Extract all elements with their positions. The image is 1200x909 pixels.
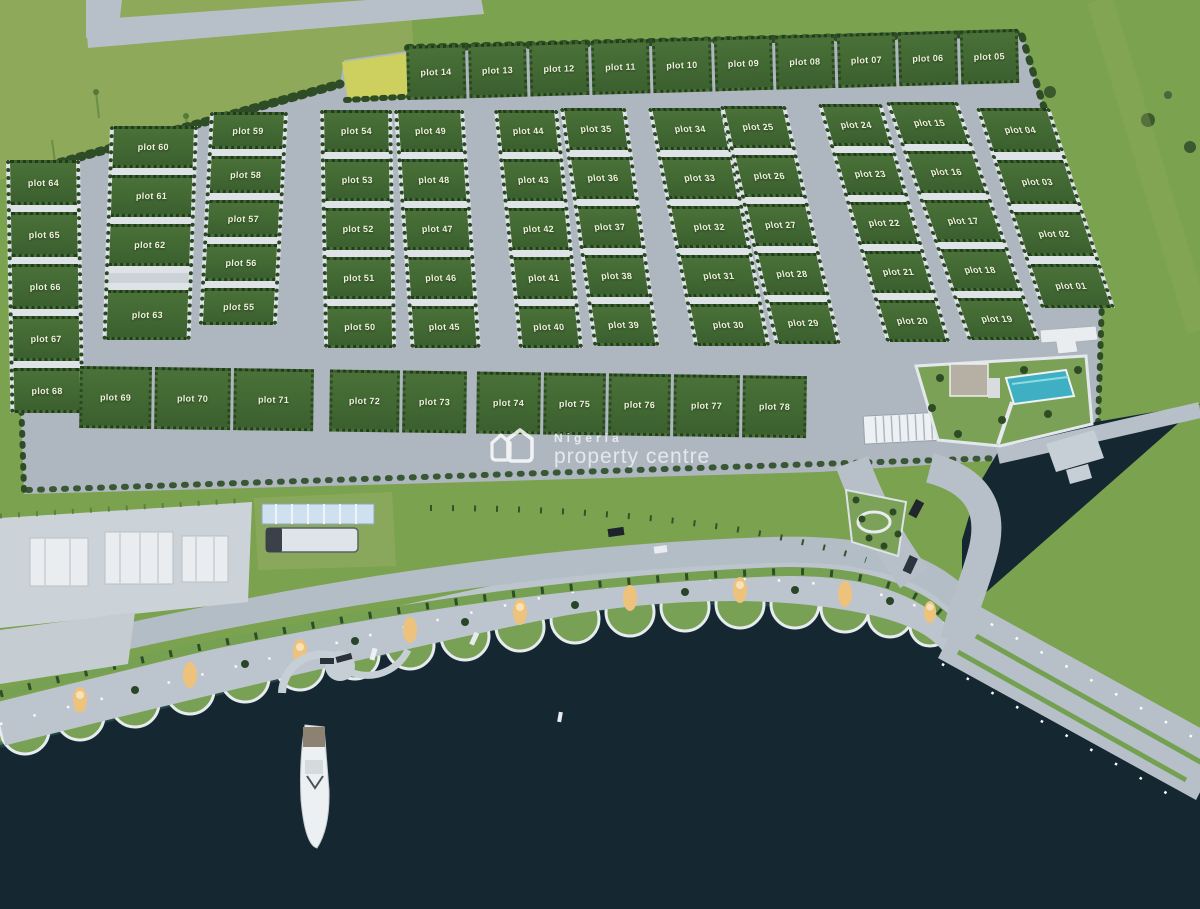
plot-cell: plot 12 (529, 41, 589, 97)
plot-cell: plot 01 (1031, 264, 1111, 308)
plot-cell: plot 09 (713, 36, 773, 92)
plot-cell: plot 45 (412, 306, 477, 348)
plot-cell: plot 51 (327, 257, 392, 299)
plot-cell: plot 43 (503, 159, 563, 201)
plot-cell: plot 59 (212, 112, 284, 149)
plot-cell: plot 70 (154, 367, 231, 430)
plot-cell: plot 65 (11, 212, 78, 257)
plot-cell: plot 62 (109, 224, 190, 266)
plot-cell: plot 25 (724, 106, 792, 148)
plot-cell: plot 06 (898, 31, 958, 87)
plot-cell: plot 32 (671, 206, 747, 248)
plot-cell: plot 15 (890, 102, 968, 144)
plot-cell: plot 20 (878, 300, 946, 342)
plot-cell: plot 61 (111, 175, 192, 217)
plot-cell: plot 60 (113, 126, 194, 168)
plot-cell: plot 14 (406, 44, 466, 100)
plot-cell: plot 38 (585, 255, 649, 297)
car (908, 499, 924, 518)
plot-column-64s: plot 64 plot 65 plot 66 plot 67 plot 68 (6, 160, 84, 413)
plot-cell: plot 75 (543, 372, 606, 435)
plot-cell: plot 71 (233, 368, 314, 431)
plot-cell: plot 26 (735, 155, 803, 197)
plot-cell: plot 35 (564, 108, 628, 150)
plot-cell: plot 42 (508, 208, 568, 250)
plot-cell: plot 56 (205, 244, 277, 281)
plot-column-50s: plot 54 plot 53 plot 52 plot 51 plot 50 (320, 110, 396, 348)
plot-cell: plot 69 (79, 366, 152, 429)
plot-cell: plot 08 (775, 34, 835, 90)
plot-cell: plot 05 (959, 29, 1019, 85)
plot-cell: plot 36 (571, 157, 635, 199)
plot-cell: plot 29 (769, 302, 837, 344)
plot-cell: plot 49 (398, 110, 463, 152)
plot-cell: plot 23 (836, 153, 904, 195)
plot-cell: plot 58 (210, 156, 282, 193)
plot-cell: plot 48 (401, 159, 466, 201)
plot-cell: plot 68 (14, 368, 81, 413)
plot-cell: plot 03 (997, 160, 1077, 204)
plot-column-55s: plot 59 plot 58 plot 57 plot 56 plot 55 (199, 112, 288, 325)
plot-cell: plot 46 (408, 257, 473, 299)
plot-cell: plot 19 (957, 298, 1035, 340)
plot-cell: plot 76 (608, 373, 671, 436)
plot-cell: plot 73 (402, 371, 467, 434)
utility-strip (109, 273, 189, 283)
car (608, 527, 625, 537)
plot-cell: plot 37 (578, 206, 642, 248)
plot-cell: plot 24 (822, 104, 890, 146)
solar-canopy (262, 504, 374, 524)
plot-cell: plot 67 (13, 316, 80, 361)
plot-cell: plot 53 (325, 159, 390, 201)
plot-cell: plot 54 (324, 110, 389, 152)
plot-cell: plot 55 (203, 288, 275, 325)
plot-cell: plot 30 (690, 304, 766, 346)
plot-cell: plot 41 (513, 257, 573, 299)
plot-cell: plot 34 (652, 108, 728, 150)
plot-cell: plot 17 (924, 200, 1002, 242)
plot-column-60s: plot 60 plot 61 plot 62 plot 63 (103, 126, 198, 340)
plot-cell: plot 72 (329, 369, 400, 432)
plot-cell: plot 28 (758, 253, 826, 295)
plot-cell: plot 74 (476, 372, 541, 435)
plot-cell: plot 44 (498, 110, 558, 152)
plot-cell: plot 21 (864, 251, 932, 293)
plot-cell: plot 66 (12, 264, 79, 309)
plot-cell: plot 50 (327, 306, 392, 348)
plot-cell: plot 64 (10, 160, 77, 205)
plot-cell: plot 16 (907, 151, 985, 193)
plot-cell: plot 22 (850, 202, 918, 244)
plot-cell: plot 04 (980, 108, 1060, 152)
plot-cell: plot 39 (592, 304, 656, 346)
plot-cell: plot 07 (836, 32, 896, 88)
plot-cell: plot 11 (590, 39, 650, 95)
plot-cell: plot 52 (326, 208, 391, 250)
truck-yard (254, 492, 396, 570)
plot-cell: plot 18 (941, 249, 1019, 291)
plot-cell: plot 31 (681, 255, 757, 297)
plot-cell: plot 33 (662, 157, 738, 199)
estate-masterplan-rendering: plot 14 plot 13 plot 12 plot 11 plot 10 … (0, 0, 1200, 909)
plot-cell: plot 63 (107, 290, 189, 340)
plot-cell: plot 13 (467, 43, 527, 99)
plot-cell: plot 10 (652, 37, 712, 93)
plot-cell: plot 57 (207, 200, 279, 237)
plot-row-bottom: plot 69 plot 70 plot 71 plot 72 plot 73 … (79, 366, 807, 438)
plot-cell: plot 77 (673, 374, 740, 437)
plot-cell: plot 40 (519, 306, 579, 348)
plot-cell: plot 78 (742, 375, 807, 438)
plot-cell: plot 27 (747, 204, 815, 246)
plot-cell: plot 02 (1014, 212, 1094, 256)
delivery-truck (266, 528, 358, 552)
plot-cell: plot 47 (405, 208, 470, 250)
